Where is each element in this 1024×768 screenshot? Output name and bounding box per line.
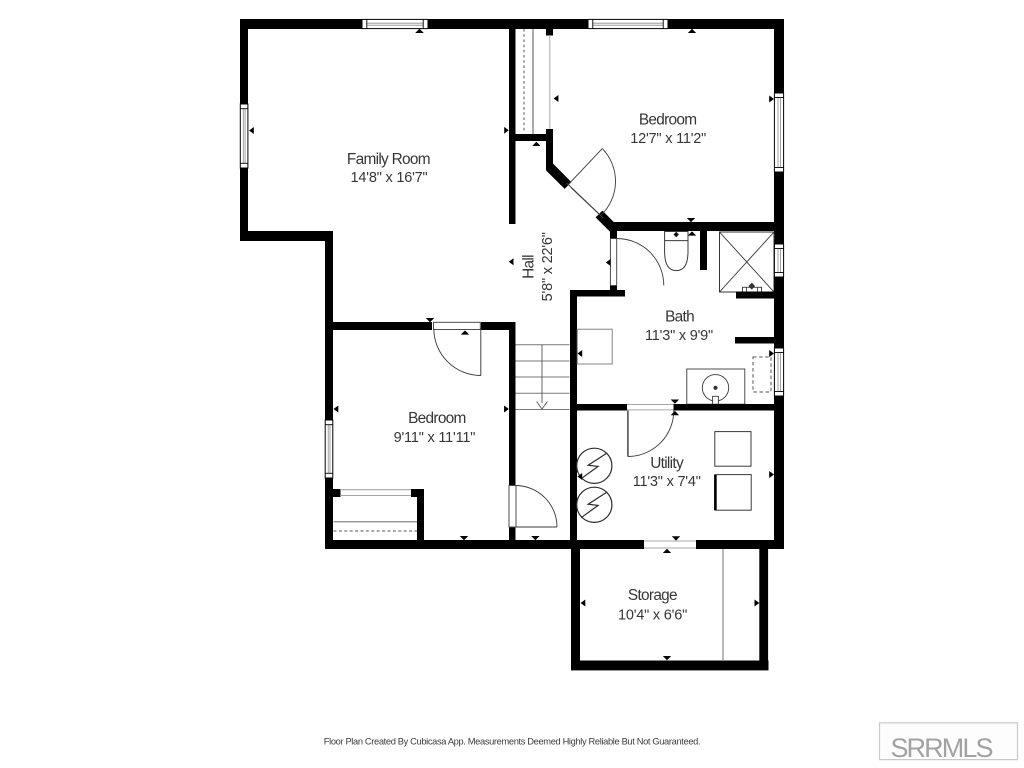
svg-text:14'8" x 16'7": 14'8" x 16'7" bbox=[351, 170, 428, 186]
svg-text:Bedroom: Bedroom bbox=[639, 111, 697, 128]
svg-text:11'3" x 7'4": 11'3" x 7'4" bbox=[633, 474, 701, 490]
svg-text:Storage: Storage bbox=[628, 587, 677, 604]
svg-text:9'11" x 11'11": 9'11" x 11'11" bbox=[394, 430, 476, 446]
svg-text:Bath: Bath bbox=[665, 309, 694, 326]
svg-text:10'4" x 6'6": 10'4" x 6'6" bbox=[618, 608, 687, 624]
svg-text:11'3" x 9'9": 11'3" x 9'9" bbox=[645, 328, 713, 344]
svg-text:12'7" x 11'2": 12'7" x 11'2" bbox=[630, 131, 706, 147]
svg-text:5'8" x 22'6": 5'8" x 22'6" bbox=[540, 232, 556, 301]
svg-text:Utility: Utility bbox=[650, 455, 684, 472]
svg-text:Hall: Hall bbox=[521, 255, 538, 279]
svg-text:Bedroom: Bedroom bbox=[408, 410, 466, 427]
svg-text:Floor Plan Created By Cubicasa: Floor Plan Created By Cubicasa App. Meas… bbox=[324, 737, 700, 747]
svg-text:Family Room: Family Room bbox=[347, 151, 430, 168]
svg-text:SRRMLS: SRRMLS bbox=[890, 733, 992, 763]
